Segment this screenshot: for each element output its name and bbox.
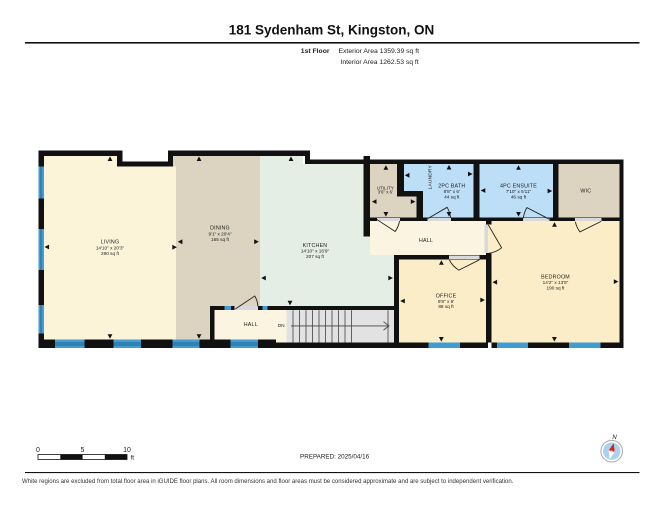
svg-text:White regions are excluded fro: White regions are excluded from total fl… [22, 479, 514, 485]
svg-text:Interior Area 1262.53 sq ft: Interior Area 1262.53 sq ft [341, 59, 419, 66]
svg-text:14'10" x 16'9": 14'10" x 16'9" [301, 249, 330, 254]
svg-text:DN: DN [278, 323, 285, 329]
svg-text:88 sq ft: 88 sq ft [438, 304, 454, 309]
svg-text:WIC: WIC [580, 188, 591, 194]
svg-text:165 sq ft: 165 sq ft [211, 237, 230, 242]
svg-text:290 sq ft: 290 sq ft [101, 251, 120, 256]
svg-text:181 Sydenham St, Kingston, ON: 181 Sydenham St, Kingston, ON [229, 23, 435, 38]
svg-text:207 sq ft: 207 sq ft [306, 254, 325, 259]
svg-text:1st Floor: 1st Floor [301, 48, 330, 55]
svg-text:14'10" x 20'3": 14'10" x 20'3" [96, 245, 125, 250]
svg-text:9'1" x 20'4": 9'1" x 20'4" [208, 231, 231, 236]
svg-text:LAUNDRY: LAUNDRY [428, 164, 434, 189]
svg-text:9'8" x 9': 9'8" x 9' [438, 299, 454, 304]
svg-text:0: 0 [36, 447, 40, 454]
svg-text:HALL: HALL [419, 238, 433, 244]
svg-text:N: N [612, 435, 617, 441]
svg-text:7'10" x 5'11": 7'10" x 5'11" [506, 189, 532, 194]
svg-text:14'2" x 13'5": 14'2" x 13'5" [543, 280, 569, 285]
svg-text:46 sq ft: 46 sq ft [511, 194, 527, 199]
svg-text:PREPARED: 2025/04/16: PREPARED: 2025/04/16 [300, 454, 370, 461]
svg-text:190 sq ft: 190 sq ft [547, 285, 566, 290]
svg-text:10: 10 [123, 447, 131, 454]
svg-text:44 sq ft: 44 sq ft [444, 194, 460, 199]
svg-text:HALL: HALL [244, 322, 258, 328]
svg-text:5: 5 [81, 447, 85, 454]
svg-text:ft: ft [131, 455, 135, 462]
svg-text:3'6" x 6': 3'6" x 6' [378, 190, 393, 195]
svg-text:Exterior Area 1359.39 sq ft: Exterior Area 1359.39 sq ft [339, 48, 420, 55]
svg-text:8'8" x 6': 8'8" x 6' [444, 189, 460, 194]
